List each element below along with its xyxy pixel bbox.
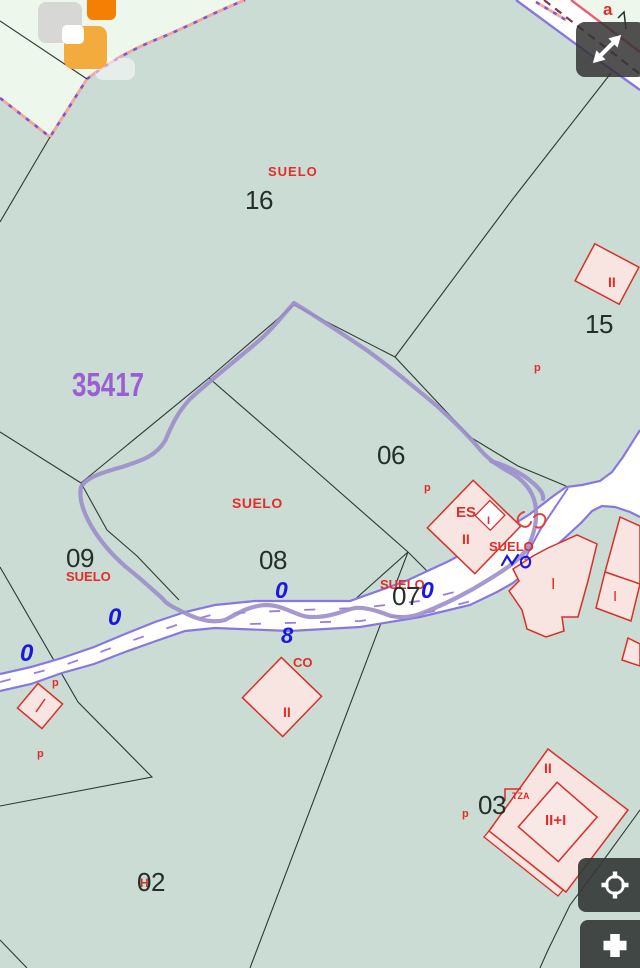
svg-text:SUELO: SUELO xyxy=(268,164,318,179)
svg-text:06: 06 xyxy=(377,440,405,470)
svg-text:p: p xyxy=(424,482,431,494)
svg-text:TZA: TZA xyxy=(512,791,530,801)
svg-text:0: 0 xyxy=(421,577,434,603)
svg-text:I: I xyxy=(487,515,490,527)
svg-text:p: p xyxy=(37,748,44,760)
svg-text:II: II xyxy=(283,704,291,720)
svg-text:II: II xyxy=(544,760,552,776)
svg-text:II: II xyxy=(608,274,616,290)
svg-text:CO: CO xyxy=(293,655,313,670)
svg-text:15: 15 xyxy=(585,309,613,339)
svg-text:35417: 35417 xyxy=(72,366,144,403)
svg-text:07: 07 xyxy=(392,581,420,611)
svg-text:0: 0 xyxy=(275,577,288,603)
svg-text:a: a xyxy=(603,0,613,19)
svg-text:16: 16 xyxy=(245,185,273,215)
svg-text:I: I xyxy=(551,576,555,593)
svg-text:p: p xyxy=(52,677,59,689)
svg-text:I: I xyxy=(613,588,617,605)
svg-text:II: II xyxy=(462,531,470,547)
svg-text:0: 0 xyxy=(108,604,122,631)
svg-text:p: p xyxy=(534,362,541,374)
svg-text:SUELO: SUELO xyxy=(489,539,534,554)
svg-text:II+I: II+I xyxy=(545,812,566,829)
svg-text:02: 02 xyxy=(137,867,165,897)
svg-text:8: 8 xyxy=(281,623,294,648)
svg-text:0: 0 xyxy=(20,640,34,667)
svg-text:08: 08 xyxy=(259,545,287,575)
svg-text:03: 03 xyxy=(478,790,506,820)
svg-text:SUELO: SUELO xyxy=(66,569,111,584)
svg-text:p: p xyxy=(462,808,469,820)
svg-text:ES: ES xyxy=(456,504,476,521)
svg-text:SUELO: SUELO xyxy=(232,495,283,511)
